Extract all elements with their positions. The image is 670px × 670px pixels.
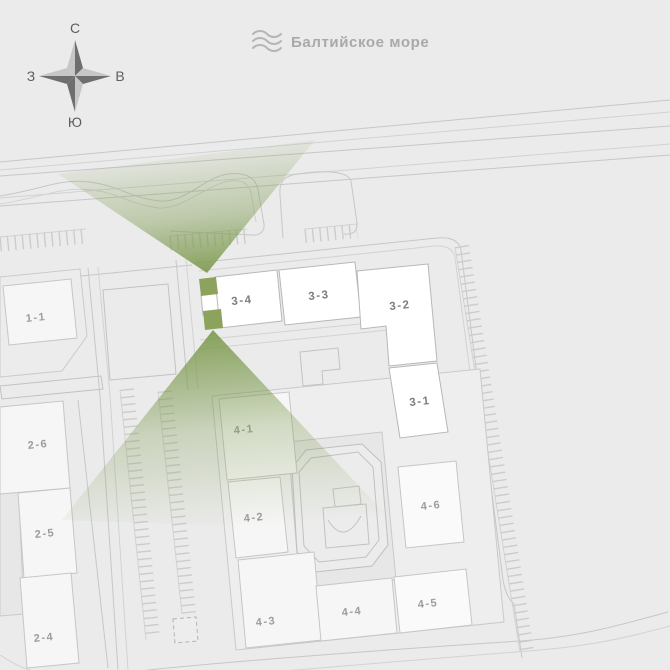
building-label-4-3[interactable]: 4-3 [255,615,277,629]
compass-north-label: С [70,20,80,36]
building-label-3-1[interactable]: 3-1 [409,395,431,409]
site-plan: 1-1 2-6 2-5 2-4 [0,0,670,670]
building-label-4-4[interactable]: 4-4 [341,605,363,619]
highlighted-section-top[interactable] [199,277,218,296]
building-4-3[interactable] [238,552,322,648]
building-label-2-5[interactable]: 2-5 [34,527,56,541]
building-label-3-2[interactable]: 3-2 [389,299,411,313]
substation-footprint [173,617,198,643]
building-label-2-4[interactable]: 2-4 [33,631,55,645]
building-2-4[interactable] [20,573,79,668]
sea-label: Балтийское море [291,34,429,51]
building-label-1-1[interactable]: 1-1 [25,311,47,325]
highlighted-section-bottom[interactable] [203,309,223,330]
building-label-4-5[interactable]: 4-5 [417,597,439,611]
building-label-4-6[interactable]: 4-6 [420,499,442,513]
building-label-2-6[interactable]: 2-6 [27,438,49,452]
building-label-3-4[interactable]: 3-4 [231,294,253,308]
building-label-3-3[interactable]: 3-3 [308,289,330,303]
compass-south-label: Ю [68,114,82,130]
compass-east-label: В [115,68,124,84]
site-plan-map: 1-1 2-6 2-5 2-4 [0,0,670,670]
compass-west-label: З [27,68,35,84]
